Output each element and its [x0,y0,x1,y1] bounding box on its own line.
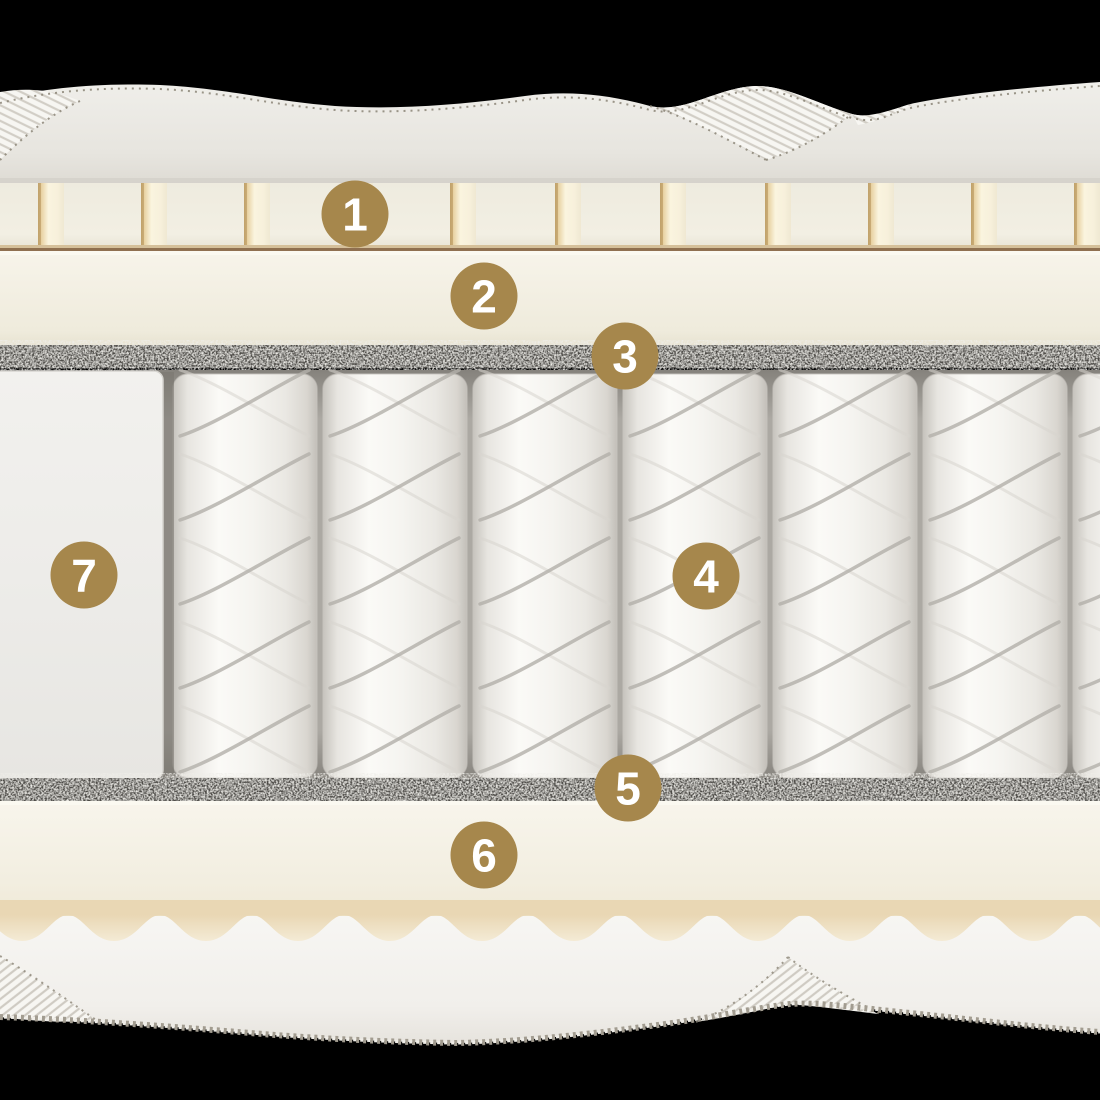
mattress-illustration [0,0,1100,1100]
callout-number: 7 [71,552,97,598]
callout-badge-4: 4 [673,543,740,610]
spring-pocket [1073,370,1100,778]
callout-number: 4 [693,553,719,599]
slatted-foam-layer [0,183,1100,247]
spring-pocket [773,370,917,778]
spring-pocket [173,370,317,778]
callout-badge-3: 3 [592,323,659,390]
callout-number: 5 [615,765,641,811]
callout-number: 6 [471,832,497,878]
callout-badge-6: 6 [451,822,518,889]
upper-felt-pad [0,345,1100,368]
callout-number: 2 [471,273,497,319]
callout-badge-5: 5 [595,755,662,822]
lower-felt-pad [0,778,1100,801]
solid-foam-layer [0,251,1100,345]
callout-number: 1 [342,191,368,237]
spring-pocket [473,370,617,778]
liner-strip [0,245,1100,252]
callout-badge-1: 1 [322,181,389,248]
mattress-cross-section-diagram: 1 2 3 4 5 6 7 [0,0,1100,1100]
spring-pocket [323,370,467,778]
spring-pocket [923,370,1067,778]
callout-badge-7: 7 [51,542,118,609]
callout-number: 3 [612,333,638,379]
callout-badge-2: 2 [451,263,518,330]
pocket-spring-core [155,370,1100,780]
